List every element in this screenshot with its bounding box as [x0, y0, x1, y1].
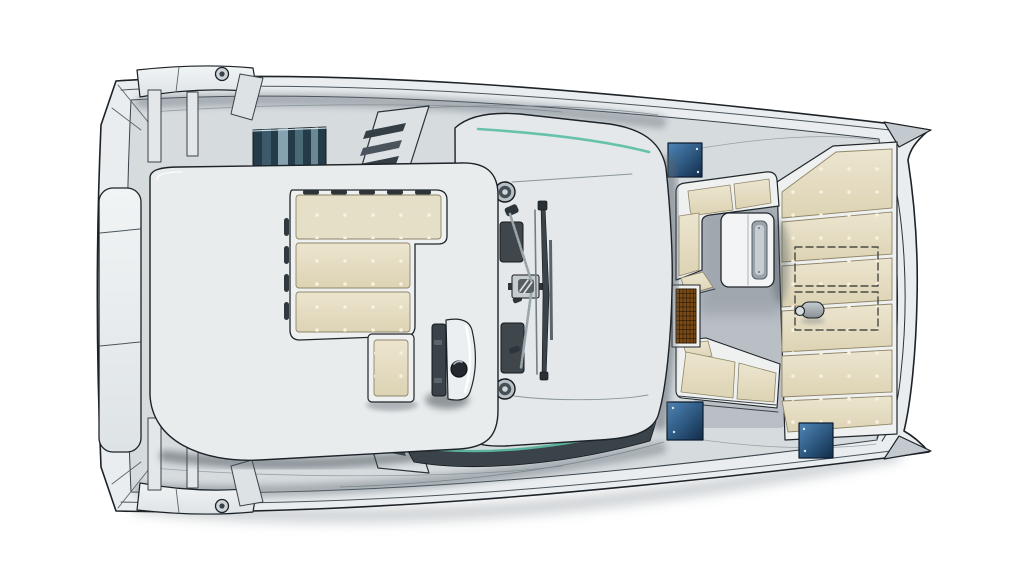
- winch-cap: [502, 189, 508, 195]
- rail-slot: [415, 190, 431, 195]
- mainsheet-block: [508, 275, 543, 298]
- sunpad-platform-group: [150, 163, 498, 460]
- platform-step-panel: [99, 188, 141, 452]
- hatch-hinge-dot: [696, 148, 698, 150]
- transom-platform: [99, 188, 145, 452]
- deck-plan-canvas: [0, 0, 1024, 580]
- rail-slot: [331, 190, 347, 195]
- deck-hatch-bottom-right: [799, 423, 833, 458]
- helm-screen: [432, 324, 446, 396]
- helm-button: [434, 378, 442, 383]
- table-screw: [758, 271, 760, 273]
- helm-console: [425, 319, 476, 409]
- deck-post-top-2: [187, 92, 198, 156]
- hatch-hinge-dot: [672, 407, 674, 409]
- table-screw: [758, 227, 760, 229]
- block-tab: [508, 283, 512, 290]
- helm-button: [434, 340, 442, 345]
- fitting-shadow: [801, 318, 825, 324]
- rail-slot: [387, 190, 403, 195]
- rail-slot-side: [284, 274, 289, 292]
- cockpit: [672, 142, 897, 440]
- bench-dots: [782, 149, 892, 432]
- sunpad-small: [368, 334, 414, 402]
- winch-cap: [502, 386, 508, 392]
- helm-knob: [451, 361, 467, 377]
- deck-post-bottom-1: [148, 418, 161, 490]
- small-pad-dots: [374, 340, 408, 396]
- rail-slot: [359, 190, 375, 195]
- rail-slot-side: [284, 302, 289, 320]
- hatch-hinge-dot: [697, 171, 699, 173]
- hatch-hinge-dot: [803, 428, 805, 430]
- deck-plan-svg: [0, 0, 1024, 580]
- rail-slot-side: [284, 246, 289, 264]
- rail-slot: [303, 190, 319, 195]
- hatch-hinge-dot: [804, 450, 806, 452]
- mooring-cleat-bottom-center: [219, 503, 224, 508]
- deck-hatch-bottom-left: [667, 402, 703, 440]
- aft-bench: [777, 142, 897, 440]
- block-tab: [539, 283, 543, 290]
- deck-post-top-1: [148, 90, 161, 162]
- fitting-ring: [796, 307, 805, 316]
- sofa-cushion: [679, 213, 699, 276]
- mooring-cleat-top-center: [219, 71, 224, 76]
- hatch-hinge-dot: [673, 431, 675, 433]
- track-end-cap-bottom: [540, 372, 548, 380]
- rail-slot-side: [284, 218, 289, 236]
- table-inset-inner: [755, 225, 764, 275]
- track-end-cap-top: [538, 201, 547, 210]
